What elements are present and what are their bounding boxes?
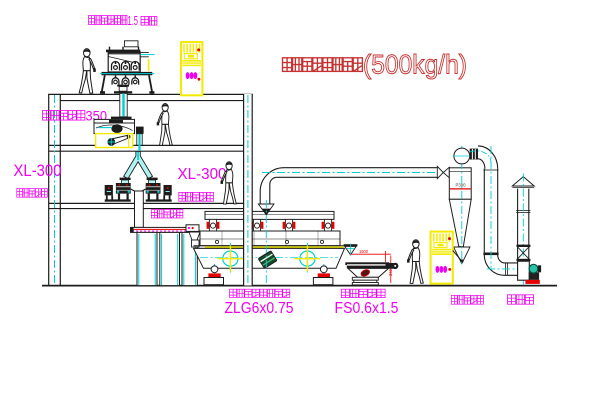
svg-text:XL-300: XL-300 — [178, 166, 227, 183]
svg-text:1500: 1500 — [359, 249, 368, 255]
svg-text:(500kg/h): (500kg/h) — [363, 50, 467, 80]
svg-text:1.5: 1.5 — [128, 14, 139, 28]
svg-text:ZLG6x0.75: ZLG6x0.75 — [225, 300, 294, 317]
svg-text:340: 340 — [388, 269, 394, 276]
svg-text:FS0.6x1.5: FS0.6x1.5 — [335, 300, 399, 317]
svg-text:XL-300: XL-300 — [14, 162, 62, 180]
svg-text:P300: P300 — [456, 182, 466, 187]
